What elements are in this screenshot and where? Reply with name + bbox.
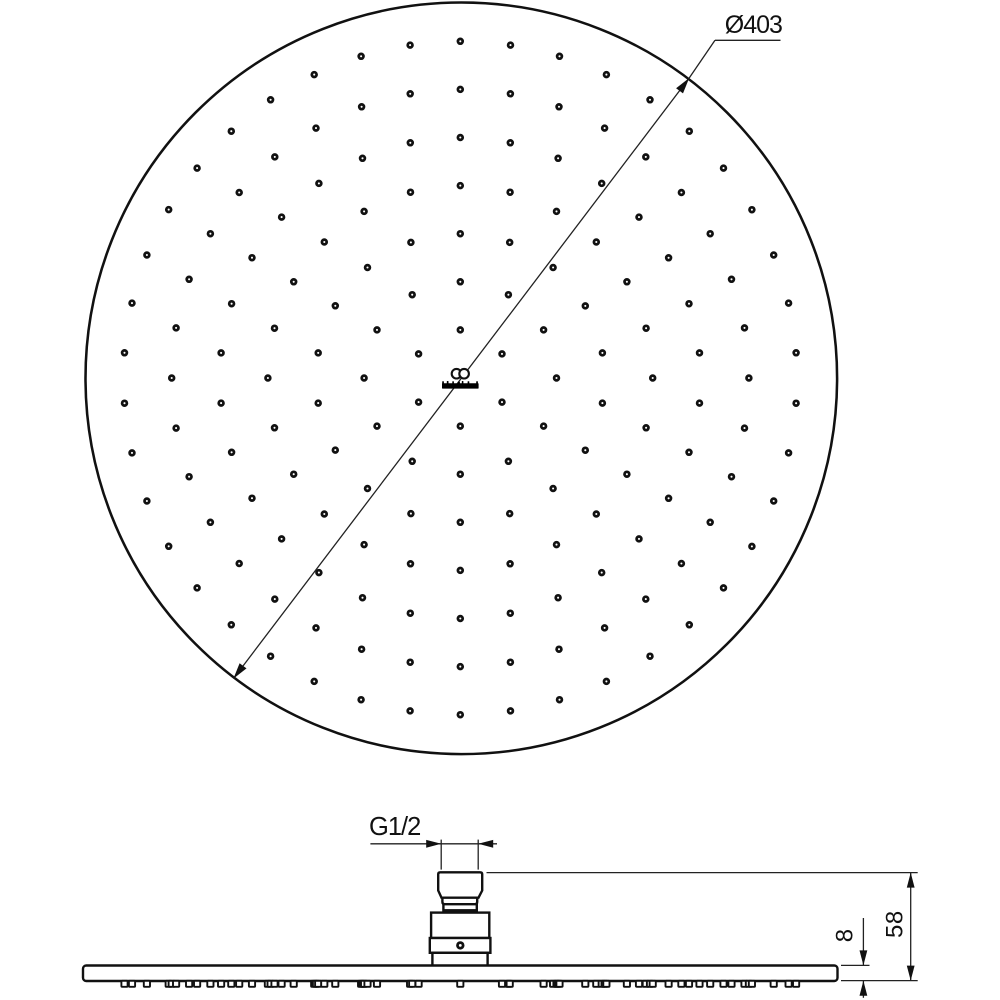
svg-text:58: 58 bbox=[881, 910, 908, 938]
svg-text:8: 8 bbox=[832, 929, 859, 942]
svg-text:Ø403: Ø403 bbox=[725, 11, 782, 39]
svg-text:G1/2: G1/2 bbox=[369, 813, 420, 841]
